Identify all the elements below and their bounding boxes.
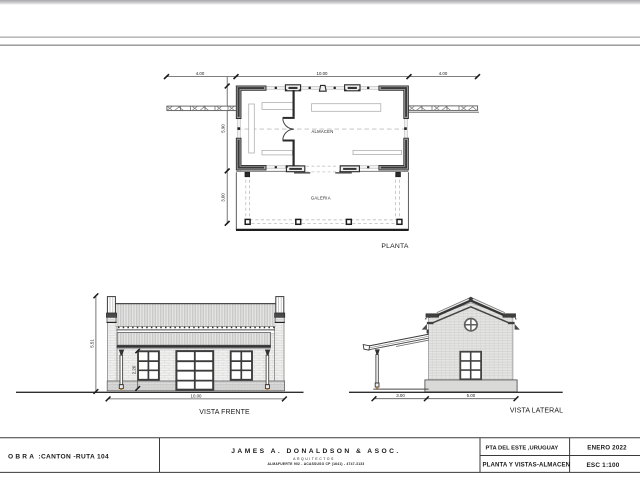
svg-text:ARQUITECTOS: ARQUITECTOS (293, 457, 335, 461)
svg-text:VISTA FRENTE: VISTA FRENTE (199, 409, 250, 416)
svg-text:3.00: 3.00 (221, 193, 226, 202)
svg-text:PTA DEL ESTE ,URUGUAY: PTA DEL ESTE ,URUGUAY (486, 446, 559, 452)
svg-text:VISTA LATERAL: VISTA LATERAL (510, 408, 563, 415)
svg-text:3.00: 3.00 (396, 393, 405, 398)
svg-text:ENERO 2022: ENERO 2022 (587, 444, 627, 451)
svg-text:OBRA :CANTON -RUTA 104: OBRA :CANTON -RUTA 104 (8, 454, 109, 461)
svg-text:5.90: 5.90 (221, 124, 226, 133)
svg-text:2.20: 2.20 (131, 365, 136, 374)
svg-text:10.00: 10.00 (191, 393, 203, 398)
svg-text:ALMAFUERTE 902 - ACASSUSO CP (: ALMAFUERTE 902 - ACASSUSO CP (1641) - 47… (268, 462, 365, 466)
svg-text:PLANTA: PLANTA (381, 243, 408, 250)
svg-text:4.00: 4.00 (196, 71, 205, 76)
svg-text:5.51: 5.51 (90, 339, 95, 348)
svg-text:JAMES A. DONALDSON & ASOC.: JAMES A. DONALDSON & ASOC. (231, 448, 400, 455)
svg-text:ALMACEN: ALMACEN (312, 129, 334, 134)
svg-text:4.00: 4.00 (439, 71, 448, 76)
svg-text:10.00: 10.00 (317, 71, 329, 76)
svg-text:PLANTA Y VISTAS-ALMACEN: PLANTA Y VISTAS-ALMACEN (483, 462, 571, 469)
svg-text:5.00: 5.00 (467, 393, 476, 398)
svg-text:GALERIA: GALERIA (311, 196, 331, 201)
svg-text:ESC 1:100: ESC 1:100 (586, 462, 619, 469)
